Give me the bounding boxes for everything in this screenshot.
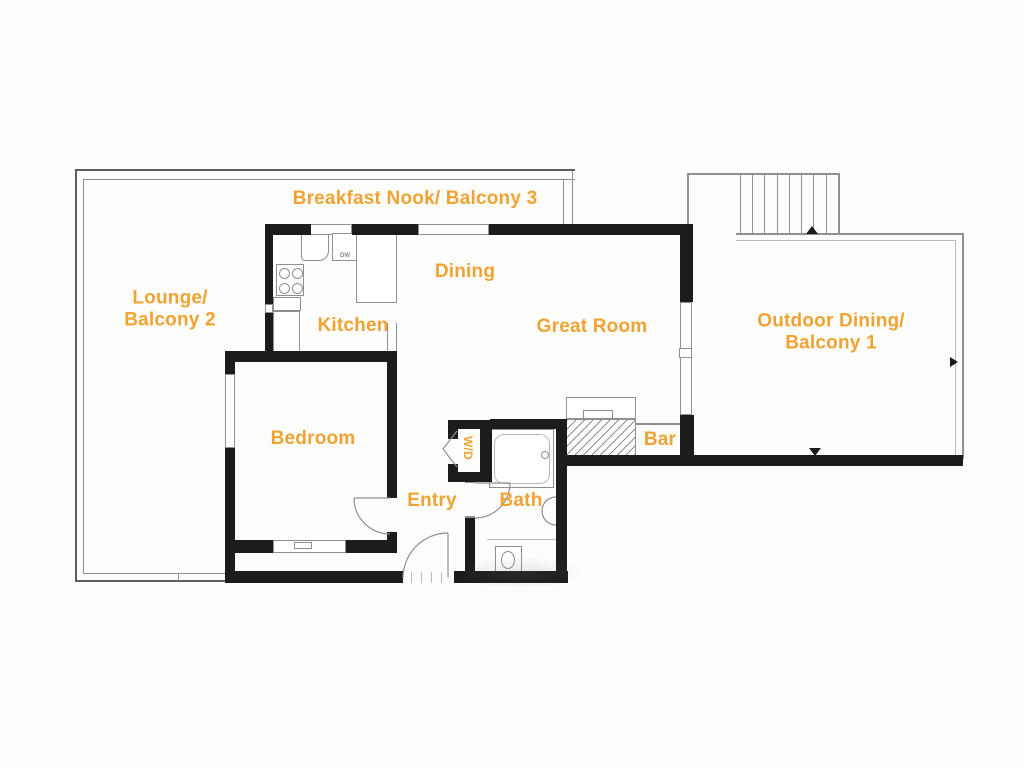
tub-faucet [541,451,549,459]
balcony2-west-outer [75,169,77,582]
stair-tread-1 [740,175,741,235]
room-label-kitchen: Kitchen [317,315,388,337]
stove-burner-4 [292,283,303,294]
wall-kitchen-west-wall-upper [265,224,273,304]
kitchen-fridge-pantry [356,233,397,303]
balcony2-south-tick [178,573,179,581]
entry-threshold-tick-1 [411,572,412,583]
wall-bedroom-north-wall [225,351,397,362]
kitchen-counter-upper [273,297,301,311]
stair-tread-2 [752,175,753,235]
entry-threshold-tick-3 [431,572,432,583]
balcony1-east-outer [962,233,964,459]
wall-bedroom-east-wall-upper [387,351,397,498]
balcony1-north-inner [736,240,955,241]
balcony2-north-outer [75,169,575,171]
wall-kitchen-west-wall-lower [265,313,273,355]
wall-top-wall-mid [352,224,418,235]
room-label-breakfast-nook-balcony-3: Breakfast Nook/ Balcony 3 [293,188,538,210]
balcony1-north-outer [736,233,964,235]
balcony1-door-arrow [809,448,821,456]
door-swing-overlay [0,0,1024,768]
wall-south-exterior-wall-west [225,571,403,583]
balcony2-south-outer [75,580,226,582]
room-label-wd: W/D [461,436,475,460]
stair-tread-4 [777,175,778,235]
stair-tread-8 [826,175,827,235]
room-label-bedroom: Bedroom [271,428,356,450]
wall-bedroom-west-wall-lower [225,448,235,583]
sliding-door-handle [679,348,692,358]
room-label-dining: Dining [435,261,495,283]
bath-mid-line [487,539,556,540]
stove-burner-2 [292,268,303,279]
nook-east-connector-outer [572,171,573,224]
window-bedroom-west [225,374,235,448]
kitchen-counter-lower [273,311,300,352]
bathtub-inner [494,434,550,484]
wall-south-wall-great-room-and-balcony [556,455,963,466]
stair-tread-6 [801,175,802,235]
fireplace-hatched-box [566,419,636,456]
stair-tread-5 [789,175,790,235]
sliding-door-great-room-east [680,302,692,415]
wall-bedroom-west-wall-upper [225,351,235,374]
floor-plan-canvas: DWBreakfast Nook/ Balcony 3Lounge/ Balco… [0,0,1024,768]
scan-smudge [455,556,585,590]
wall-top-wall-east [489,224,693,235]
balcony2-south-inner [83,573,226,574]
room-label-entry: Entry [407,490,457,512]
stair-tread-3 [764,175,765,235]
room-label-lounge-balcony-2: Lounge/ Balcony 2 [124,288,216,333]
room-label-great-room: Great Room [537,316,648,338]
window-kitchen-west-small [265,304,273,313]
bar-counter-line [636,423,680,425]
wall-bedroom-south-wall-west [225,540,273,553]
kitchen-opening-jamb-east [396,323,397,351]
appliance-label-dw: DW [340,253,350,259]
wall-great-room-east-wall-upper [680,224,693,302]
fireplace-notch [583,410,613,419]
stairs-east-line [838,173,840,235]
entry-threshold-tick-4 [441,572,442,583]
bedroom-door-swing [354,498,390,534]
stove-burner-1 [279,268,290,279]
room-label-bath: Bath [499,490,542,512]
room-label-bar: Bar [644,429,676,451]
kitchen-sink [301,234,329,261]
bath-sink-bowl [542,497,556,525]
balcony1-east-inner [955,240,956,457]
room-label-outdoor-dining-balcony-1: Outdoor Dining/ Balcony 1 [757,311,905,356]
stairs-up-arrow [806,226,818,234]
nook-east-connector-inner [563,180,564,224]
wall-great-room-east-wall-lower [680,415,694,458]
stove-burner-3 [279,283,290,294]
balcony2-north-inner [83,179,575,180]
balcony2-west-inner [83,179,84,574]
window-breakfast-nook-east [418,224,489,235]
entry-threshold-tick-2 [421,572,422,583]
balcony1-side-arrow [950,357,958,367]
wall-wd-west-stub-upper [448,420,458,439]
window-bedroom-south-sill [294,542,312,549]
wall-wd-east-wall [480,420,492,482]
wall-bedroom-south-wall-east [346,540,397,553]
